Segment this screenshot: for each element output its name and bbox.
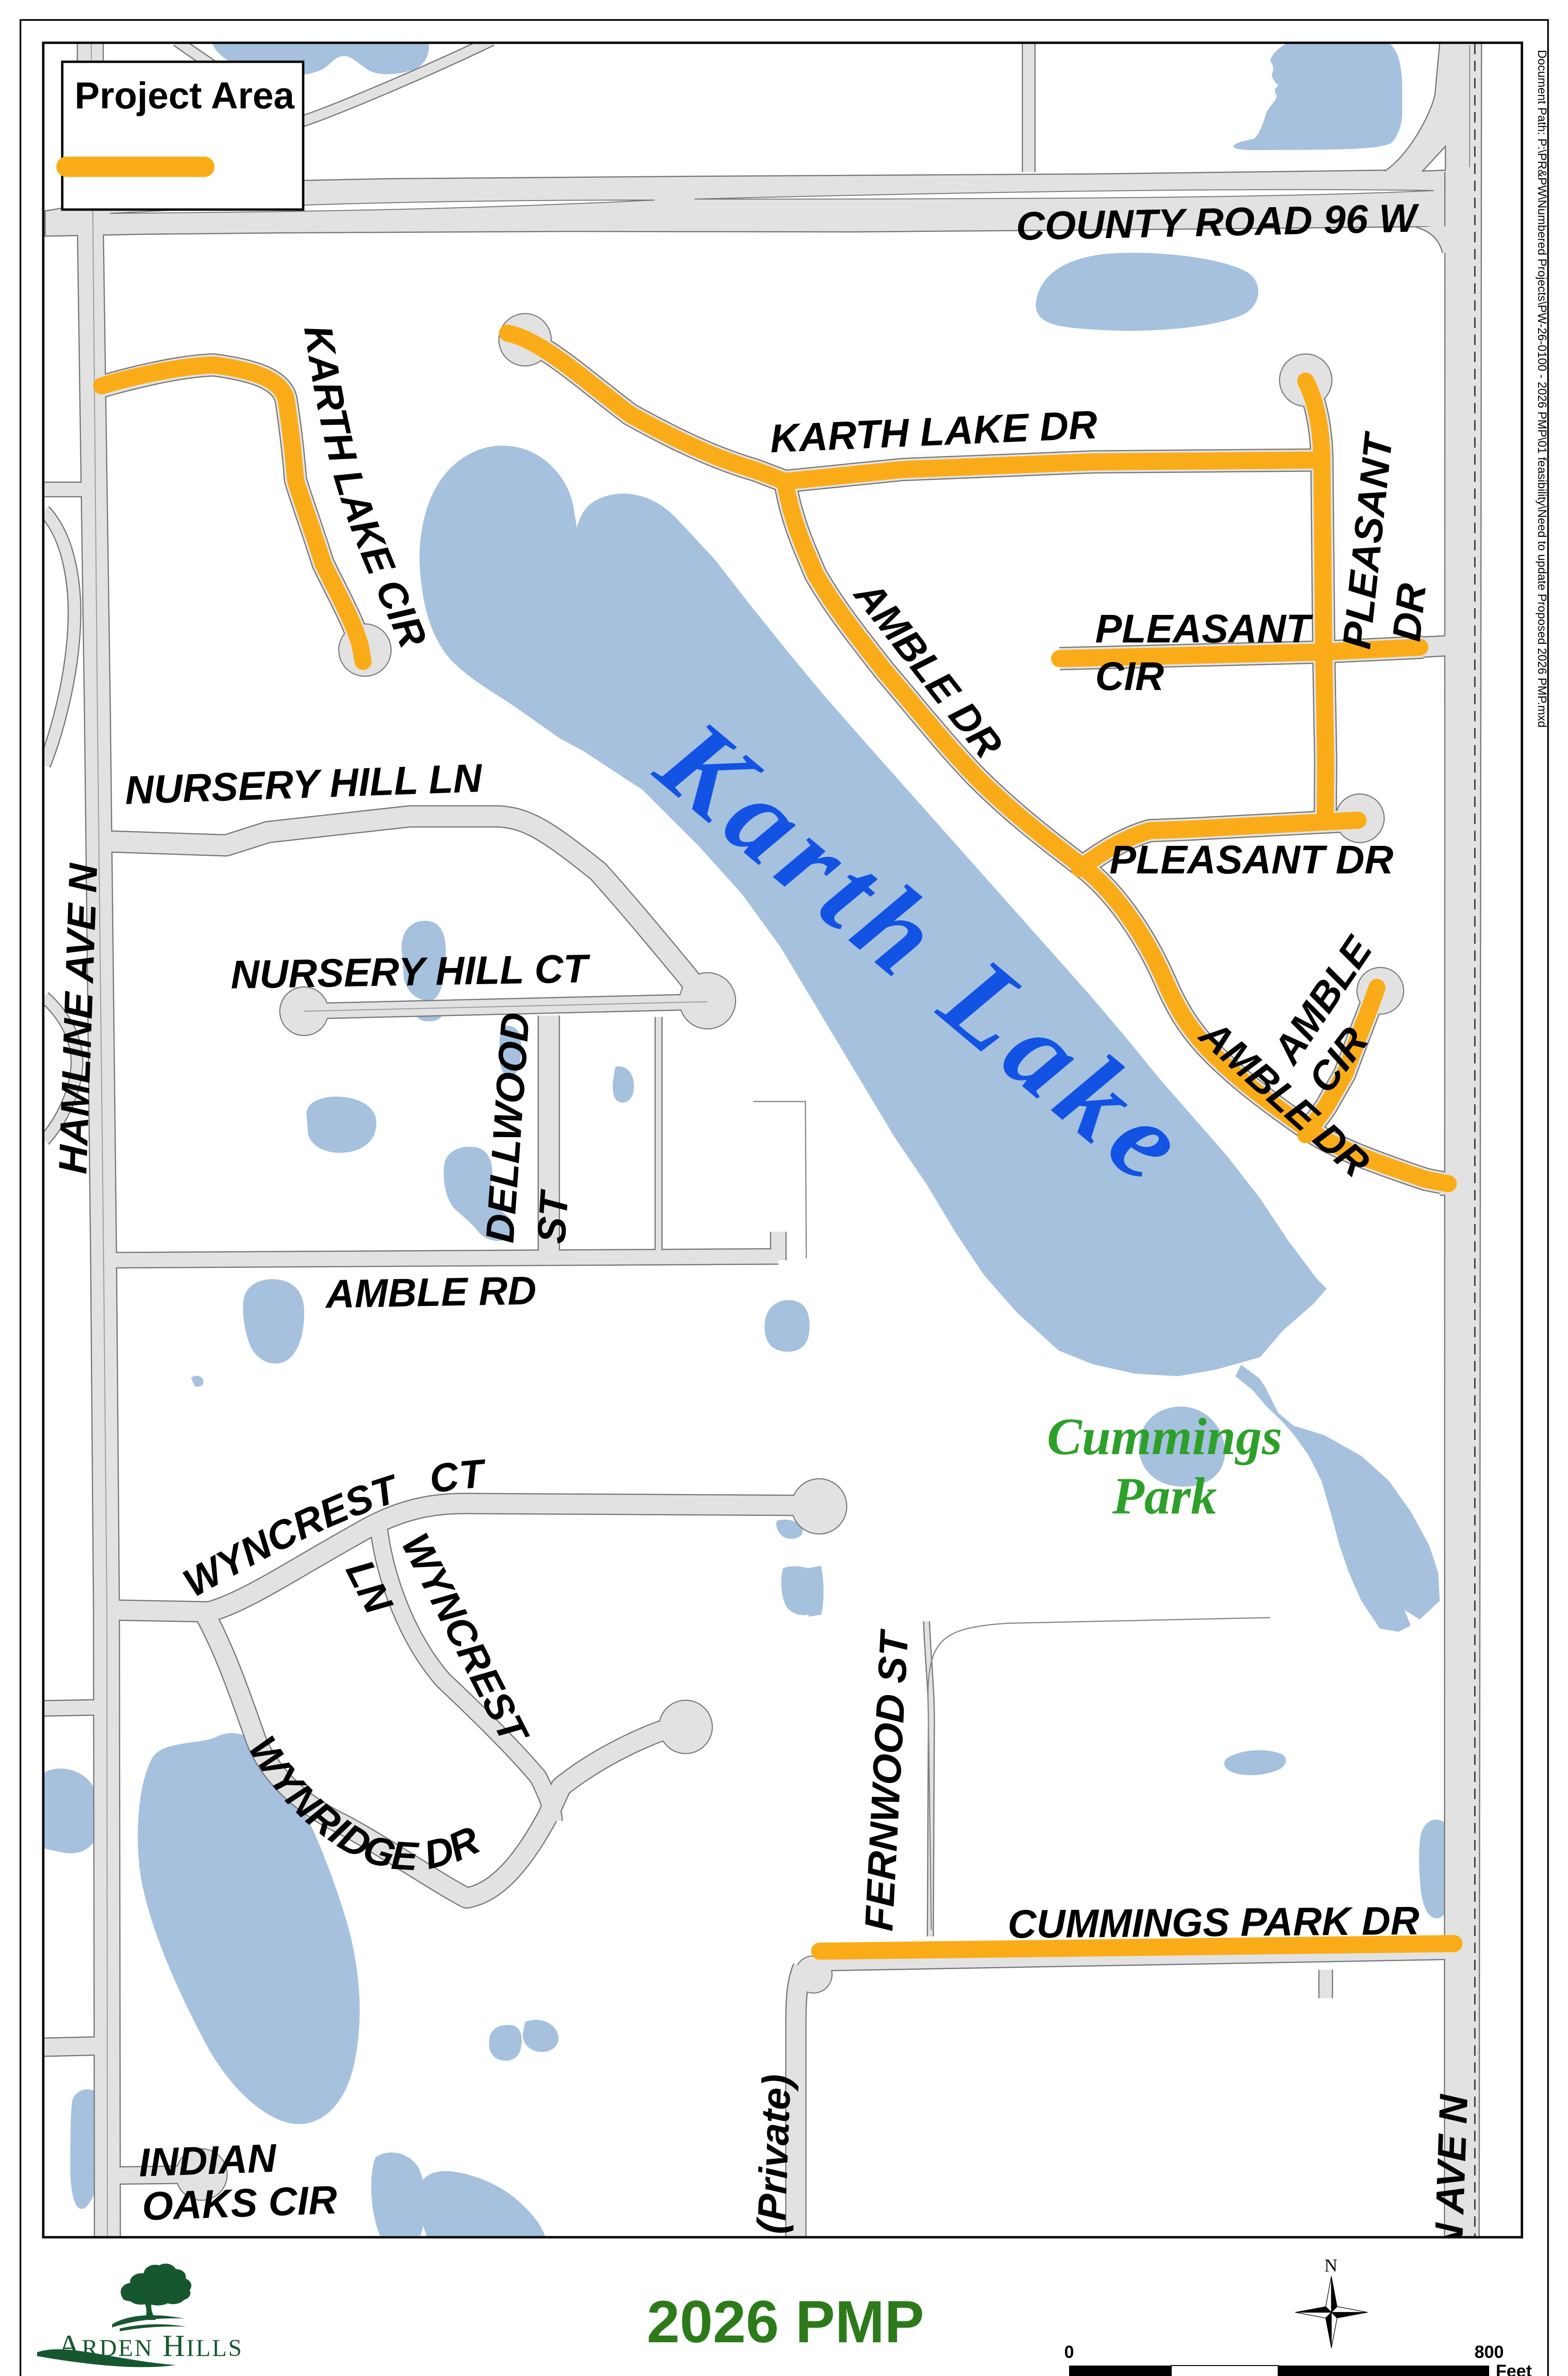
svg-text:Feet: Feet [1496,2361,1532,2376]
svg-text:Document Path: P:\PR&PW\Number: Document Path: P:\PR&PW\Numbered Project… [1535,50,1549,728]
svg-text:(Private): (Private) [749,2073,799,2234]
svg-text:AMBLE RD: AMBLE RD [325,1268,537,1316]
svg-text:OAKS CIR: OAKS CIR [141,2177,338,2229]
svg-text:0: 0 [1064,2342,1074,2362]
svg-text:CIR: CIR [1095,654,1164,699]
svg-text:DR: DR [1384,581,1434,643]
svg-text:PLEASANT: PLEASANT [1095,606,1313,651]
svg-text:CUMMINGS PARK DR: CUMMINGS PARK DR [1007,1898,1420,1946]
svg-text:N: N [1324,2256,1337,2276]
svg-text:800: 800 [1474,2342,1504,2362]
svg-text:2026 PMP: 2026 PMP [647,2289,924,2355]
svg-text:INDIAN: INDIAN [138,2136,278,2185]
svg-text:Project Area: Project Area [75,74,295,116]
svg-text:PLEASANT DR: PLEASANT DR [1109,837,1394,882]
svg-text:Cummings: Cummings [1047,1408,1282,1466]
svg-text:ST: ST [528,1188,577,1245]
svg-text:COUNTY ROAD 96 W: COUNTY ROAD 96 W [1015,195,1420,249]
svg-text:Park: Park [1112,1467,1217,1525]
svg-text:NURSERY HILL CT: NURSERY HILL CT [230,946,592,997]
